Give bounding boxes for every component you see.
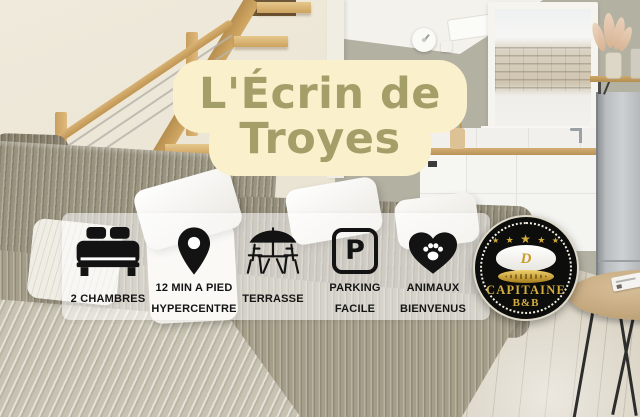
page-title-line-2: Troyes: [209, 115, 430, 176]
star-icon: ★: [492, 236, 500, 245]
bed-icon: [76, 220, 140, 276]
feature-label: HYPERCENTRE: [151, 299, 236, 320]
brand-name: CAPITAINE: [475, 283, 577, 298]
parking-icon: P: [332, 220, 378, 276]
location-pin-icon: [177, 220, 211, 276]
stair-step: [234, 36, 288, 47]
brand-subtitle: B&B: [475, 297, 577, 309]
terrace-icon: [245, 220, 301, 276]
star-icon: ★: [520, 232, 532, 246]
features-band: 2 CHAMBRES 12 MIN A PIED HYPERCENTRE: [62, 213, 490, 320]
hat-crown: D: [496, 245, 556, 271]
feature-walk-distance: 12 MIN A PIED HYPERCENTRE: [150, 213, 238, 320]
feature-pets: ANIMAUX BIENVENUS: [387, 213, 479, 320]
feature-parking: P PARKING FACILE: [315, 213, 395, 320]
hat-emblem: D: [521, 251, 532, 268]
magazine-text-line: [616, 277, 636, 283]
heart-paw-icon: [408, 220, 458, 276]
star-icon: ★: [537, 235, 546, 245]
captain-hat-icon: D: [496, 245, 556, 283]
listing-cover-photo: L'Écrin de Troyes 2 CHAMBRES: [0, 0, 640, 417]
feature-label: PARKING: [329, 278, 380, 299]
wall-clock: [412, 28, 436, 52]
feature-label: TERRASSE: [242, 289, 304, 310]
feature-label: 12 MIN A PIED: [151, 278, 236, 299]
feature-label: 2 CHAMBRES: [71, 289, 146, 310]
clock-center: [422, 38, 426, 42]
star-icon: ★: [552, 236, 560, 245]
feature-label: ANIMAUX: [400, 278, 466, 299]
capitaine-bb-logo: ★ ★ ★ ★ ★ D CAPITAINE B&B: [473, 215, 579, 321]
hat-band-ornament: [505, 274, 547, 279]
feature-terrace: TERRASSE: [232, 213, 314, 320]
feature-label: FACILE: [329, 299, 380, 320]
feature-bedrooms: 2 CHAMBRES: [64, 213, 152, 320]
hat-band: [498, 270, 554, 283]
star-icon: ★: [506, 235, 515, 245]
feature-label: BIENVENUS: [400, 299, 466, 320]
stair-step: [257, 2, 311, 13]
fridge-seam: [598, 260, 640, 262]
title-banner: L'Écrin de Troyes: [0, 60, 640, 176]
light-switch: [441, 41, 452, 52]
magazine-photo: [616, 284, 622, 289]
parking-letter: P: [345, 235, 365, 266]
